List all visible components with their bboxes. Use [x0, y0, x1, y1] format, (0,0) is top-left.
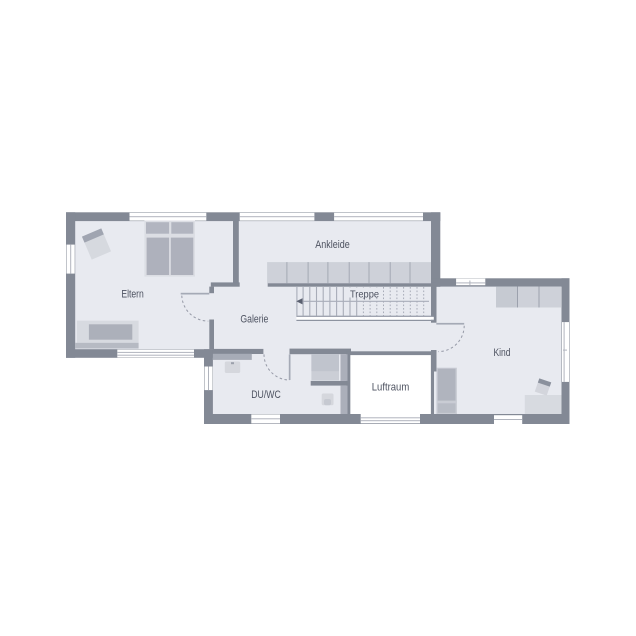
- svg-text:Treppe: Treppe: [350, 288, 379, 300]
- svg-text:Kind: Kind: [494, 347, 511, 359]
- svg-text:Ankleide: Ankleide: [315, 239, 350, 251]
- svg-text:Eltern: Eltern: [121, 289, 144, 301]
- svg-text:Luftraum: Luftraum: [372, 381, 410, 393]
- svg-text:DU/WC: DU/WC: [251, 389, 281, 401]
- svg-text:Galerie: Galerie: [240, 314, 268, 326]
